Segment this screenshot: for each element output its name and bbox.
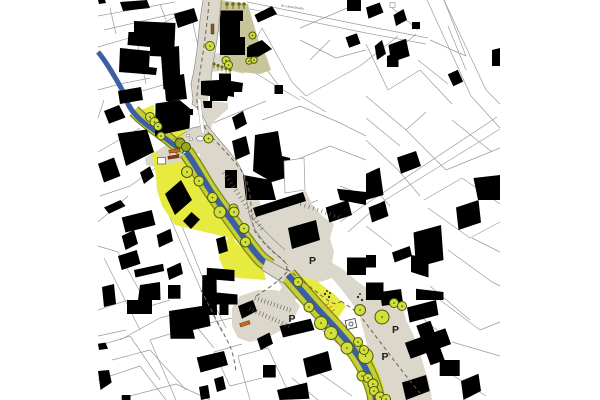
svg-text:P: P xyxy=(382,351,389,363)
svg-text:P: P xyxy=(309,255,316,267)
svg-text:P: P xyxy=(289,313,296,325)
svg-text:P: P xyxy=(392,324,399,336)
